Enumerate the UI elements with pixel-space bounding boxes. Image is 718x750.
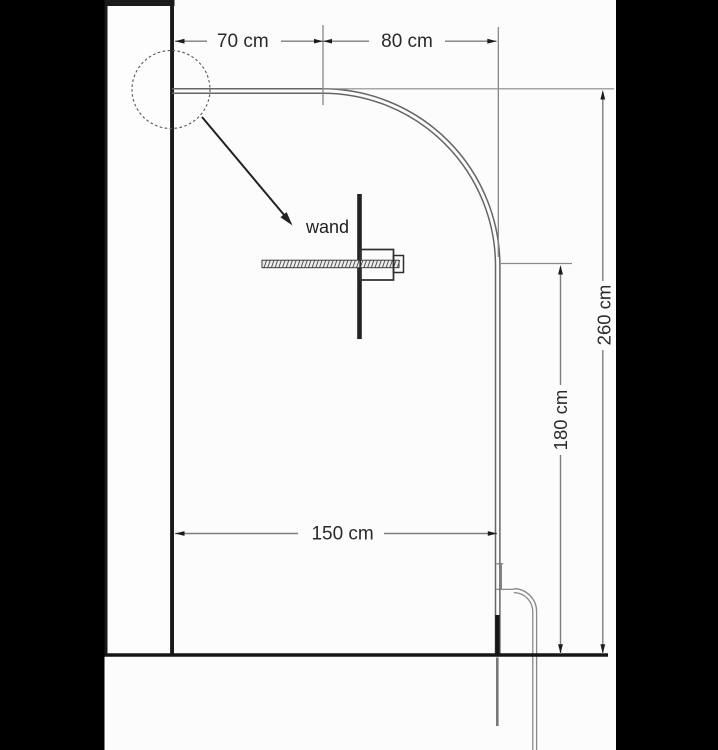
svg-text:150 cm: 150 cm	[311, 523, 373, 544]
svg-text:180 cm: 180 cm	[550, 390, 571, 451]
svg-text:70 cm: 70 cm	[217, 31, 269, 52]
svg-text:80 cm: 80 cm	[381, 31, 433, 52]
svg-text:wand: wand	[305, 217, 349, 237]
svg-text:260 cm: 260 cm	[594, 285, 615, 346]
